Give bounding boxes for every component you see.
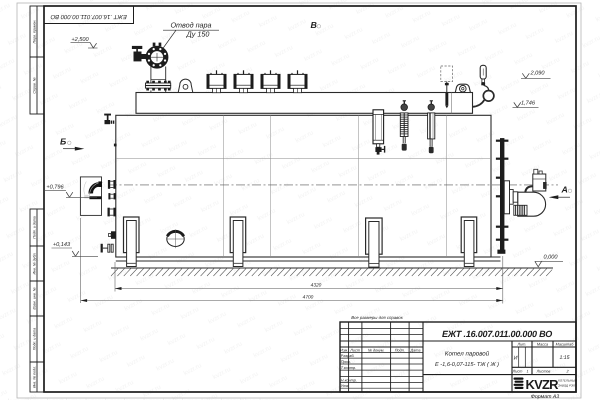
- svg-text:Котел паровой: Котел паровой: [445, 351, 490, 358]
- svg-text:Дата: Дата: [409, 349, 420, 353]
- svg-text:Подп. и дата: Подп. и дата: [33, 216, 37, 239]
- svg-text:Отвод пара: Отвод пара: [170, 21, 211, 30]
- svg-text:ЕЖТ .16.007.011.00.000 ВО: ЕЖТ .16.007.011.00.000 ВО: [442, 329, 552, 339]
- svg-text:КОТЕЛЬНЫЙ: КОТЕЛЬНЫЙ: [558, 379, 578, 383]
- svg-text:Разраб.: Разраб.: [341, 354, 355, 358]
- svg-text:Взам. инв. №: Взам. инв. №: [33, 287, 37, 309]
- svg-text:Лит.: Лит.: [517, 342, 527, 346]
- svg-text:Масса: Масса: [537, 342, 548, 346]
- svg-text:Инв. № дубл.: Инв. № дубл.: [33, 252, 37, 274]
- svg-text:+0,796: +0,796: [46, 185, 64, 191]
- svg-text:Лист: Лист: [512, 369, 523, 373]
- svg-text:0,000: 0,000: [544, 255, 559, 261]
- svg-text:А: А: [561, 185, 568, 195]
- svg-text:Масштаб: Масштаб: [556, 342, 575, 346]
- svg-text:Т.контр.: Т.контр.: [341, 366, 356, 370]
- svg-text:ЕЖТ .16.007.011.00.000 ВО: ЕЖТ .16.007.011.00.000 ВО: [50, 13, 127, 20]
- svg-text:KVZR: KVZR: [526, 377, 560, 392]
- svg-text:Перв. примен.: Перв. примен.: [33, 20, 37, 44]
- svg-text:В: В: [311, 20, 318, 30]
- svg-text:Изм.: Изм.: [340, 349, 348, 353]
- svg-text:Формат А3: Формат А3: [531, 394, 559, 400]
- svg-text:1: 1: [526, 369, 528, 373]
- svg-text:Утв.: Утв.: [341, 384, 350, 388]
- svg-text:Ду 150: Ду 150: [186, 30, 210, 39]
- svg-text:+2,500: +2,500: [71, 37, 89, 43]
- svg-text:4320: 4320: [311, 282, 322, 288]
- svg-text:Е -1,6-0,07-115- ТЖ ( Ж ): Е -1,6-0,07-115- ТЖ ( Ж ): [435, 361, 499, 368]
- svg-text:1,746: 1,746: [521, 101, 536, 107]
- svg-text:Подп.: Подп.: [395, 349, 405, 353]
- svg-text:ЗАВОД РЭП: ЗАВОД РЭП: [558, 384, 576, 388]
- svg-text:+0,143: +0,143: [53, 242, 71, 248]
- svg-text:4700: 4700: [303, 294, 314, 300]
- svg-text:Справ. №: Справ. №: [33, 77, 37, 93]
- svg-text:Б: Б: [60, 137, 66, 147]
- svg-text:Все размеры для справок: Все размеры для справок: [351, 315, 403, 320]
- svg-text:№ докум.: № докум.: [368, 349, 385, 353]
- svg-text:Листов: Листов: [536, 369, 551, 373]
- svg-text:Инв. № подл.: Инв. № подл.: [33, 366, 37, 388]
- svg-text:И: И: [514, 356, 518, 362]
- svg-text:1:15: 1:15: [559, 355, 569, 361]
- svg-text:2,090: 2,090: [530, 71, 546, 77]
- svg-text:Пров.: Пров.: [341, 360, 351, 364]
- svg-text:Лист: Лист: [349, 349, 360, 353]
- svg-text:Н.контр.: Н.контр.: [341, 378, 357, 382]
- svg-text:Подп. и дата: Подп. и дата: [33, 328, 37, 351]
